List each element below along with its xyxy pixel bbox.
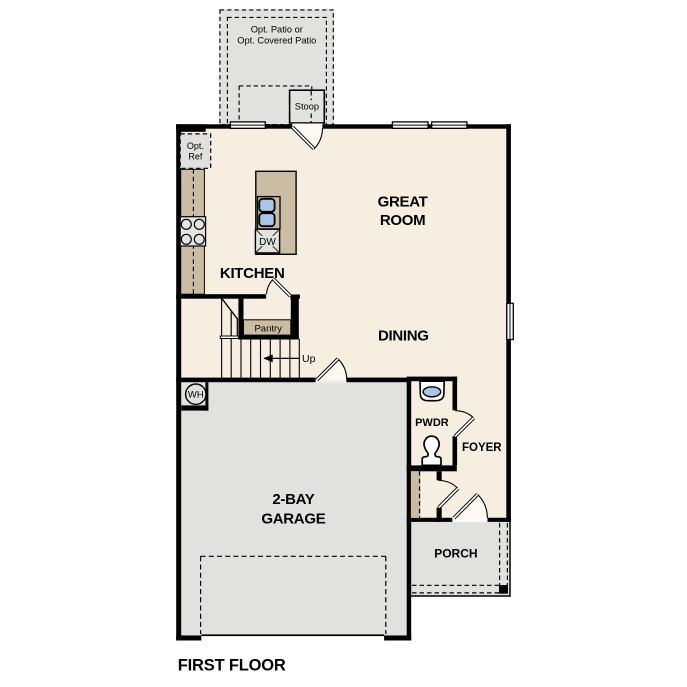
svg-text:Up: Up <box>302 353 316 365</box>
svg-text:PORCH: PORCH <box>434 547 477 561</box>
svg-text:DINING: DINING <box>378 327 429 344</box>
svg-text:FIRST FLOOR: FIRST FLOOR <box>178 656 286 674</box>
svg-text:DW: DW <box>259 237 276 248</box>
svg-text:ROOM: ROOM <box>380 212 425 229</box>
svg-text:FOYER: FOYER <box>462 442 502 454</box>
svg-text:Pantry: Pantry <box>254 323 282 334</box>
svg-text:Opt. Patio or: Opt. Patio or <box>251 25 303 35</box>
svg-text:WH: WH <box>188 390 204 401</box>
svg-text:Ref: Ref <box>188 152 203 162</box>
svg-text:Opt.: Opt. <box>187 141 204 151</box>
svg-text:Opt. Covered Patio: Opt. Covered Patio <box>237 36 316 46</box>
svg-text:GREAT: GREAT <box>378 193 428 210</box>
svg-text:Stoop: Stoop <box>295 101 319 111</box>
svg-text:GARAGE: GARAGE <box>261 510 325 527</box>
svg-text:KITCHEN: KITCHEN <box>220 265 285 282</box>
svg-text:PWDR: PWDR <box>415 417 449 429</box>
svg-text:2-BAY: 2-BAY <box>272 491 314 508</box>
